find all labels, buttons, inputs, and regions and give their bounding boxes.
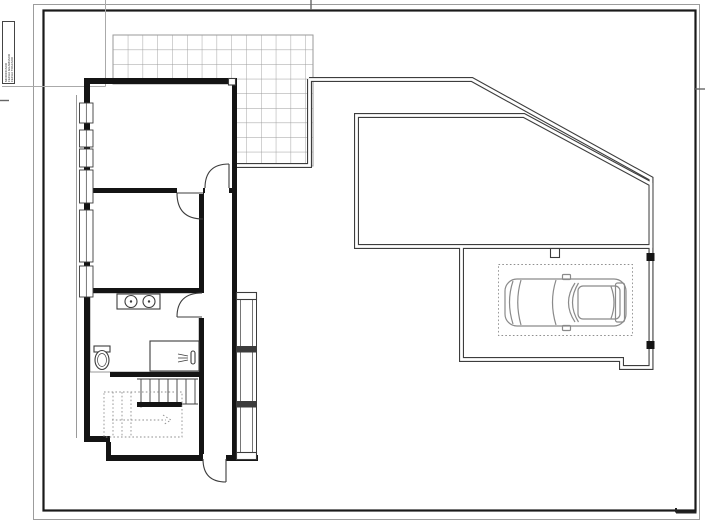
car-windshield (569, 283, 576, 322)
west-windows (80, 103, 94, 297)
glazing-mullion (237, 346, 257, 353)
wall-room-divider-2 (84, 288, 204, 293)
door-room-a (205, 164, 229, 188)
drawing-sheet: MODIFICADO FECHA GUARDADO FECHA TRAZADO (0, 0, 705, 526)
stair-upper-flight-dashed (104, 392, 182, 437)
window (80, 130, 94, 147)
driveway-court-wall (357, 116, 652, 247)
glazed-gallery (237, 293, 257, 460)
window (80, 210, 94, 262)
vanity-double-sink (117, 294, 160, 309)
corner-column-marker (229, 79, 236, 86)
title-block-line: FECHA TRAZADO (10, 23, 13, 82)
garage-column (551, 249, 560, 258)
floor-plan-drawing (0, 0, 705, 526)
window (80, 103, 94, 123)
window (80, 149, 94, 167)
door-opening-room-a (205, 187, 229, 194)
window (80, 266, 94, 297)
staircase (104, 379, 198, 437)
car-front-bumper (510, 281, 514, 324)
wall-bathroom-south (110, 372, 204, 377)
bathroom-fixtures (94, 294, 199, 371)
car-top-view-icon (505, 275, 626, 331)
wall-corridor-partition (199, 193, 204, 457)
terrace-paving-grid (113, 35, 313, 166)
car-windshield-base (553, 280, 557, 325)
wall-step-v (106, 442, 111, 457)
wall-north (84, 78, 237, 84)
shower (150, 341, 199, 371)
title-block: MODIFICADO FECHA GUARDADO FECHA TRAZADO (2, 21, 15, 84)
garage-door-pilaster-bottom (647, 341, 655, 349)
car-hood-line (518, 280, 521, 325)
glazing-mullion (237, 401, 257, 408)
registration-lines (2, 0, 106, 87)
stair-treads (137, 379, 198, 404)
car-rear-window (611, 287, 614, 319)
toilet (94, 346, 110, 370)
window (80, 170, 94, 203)
door-opening-entry (203, 454, 226, 462)
site-wall-north-diagonal (309, 80, 651, 248)
stair-start-dot (138, 402, 144, 408)
parking-space-outline (499, 265, 633, 336)
door-entry (203, 459, 226, 482)
stair-direction-arrow (163, 415, 171, 425)
drawing-frame (44, 11, 696, 511)
door-opening-bathroom (198, 293, 205, 318)
garage-door-pilaster-top (647, 253, 655, 261)
